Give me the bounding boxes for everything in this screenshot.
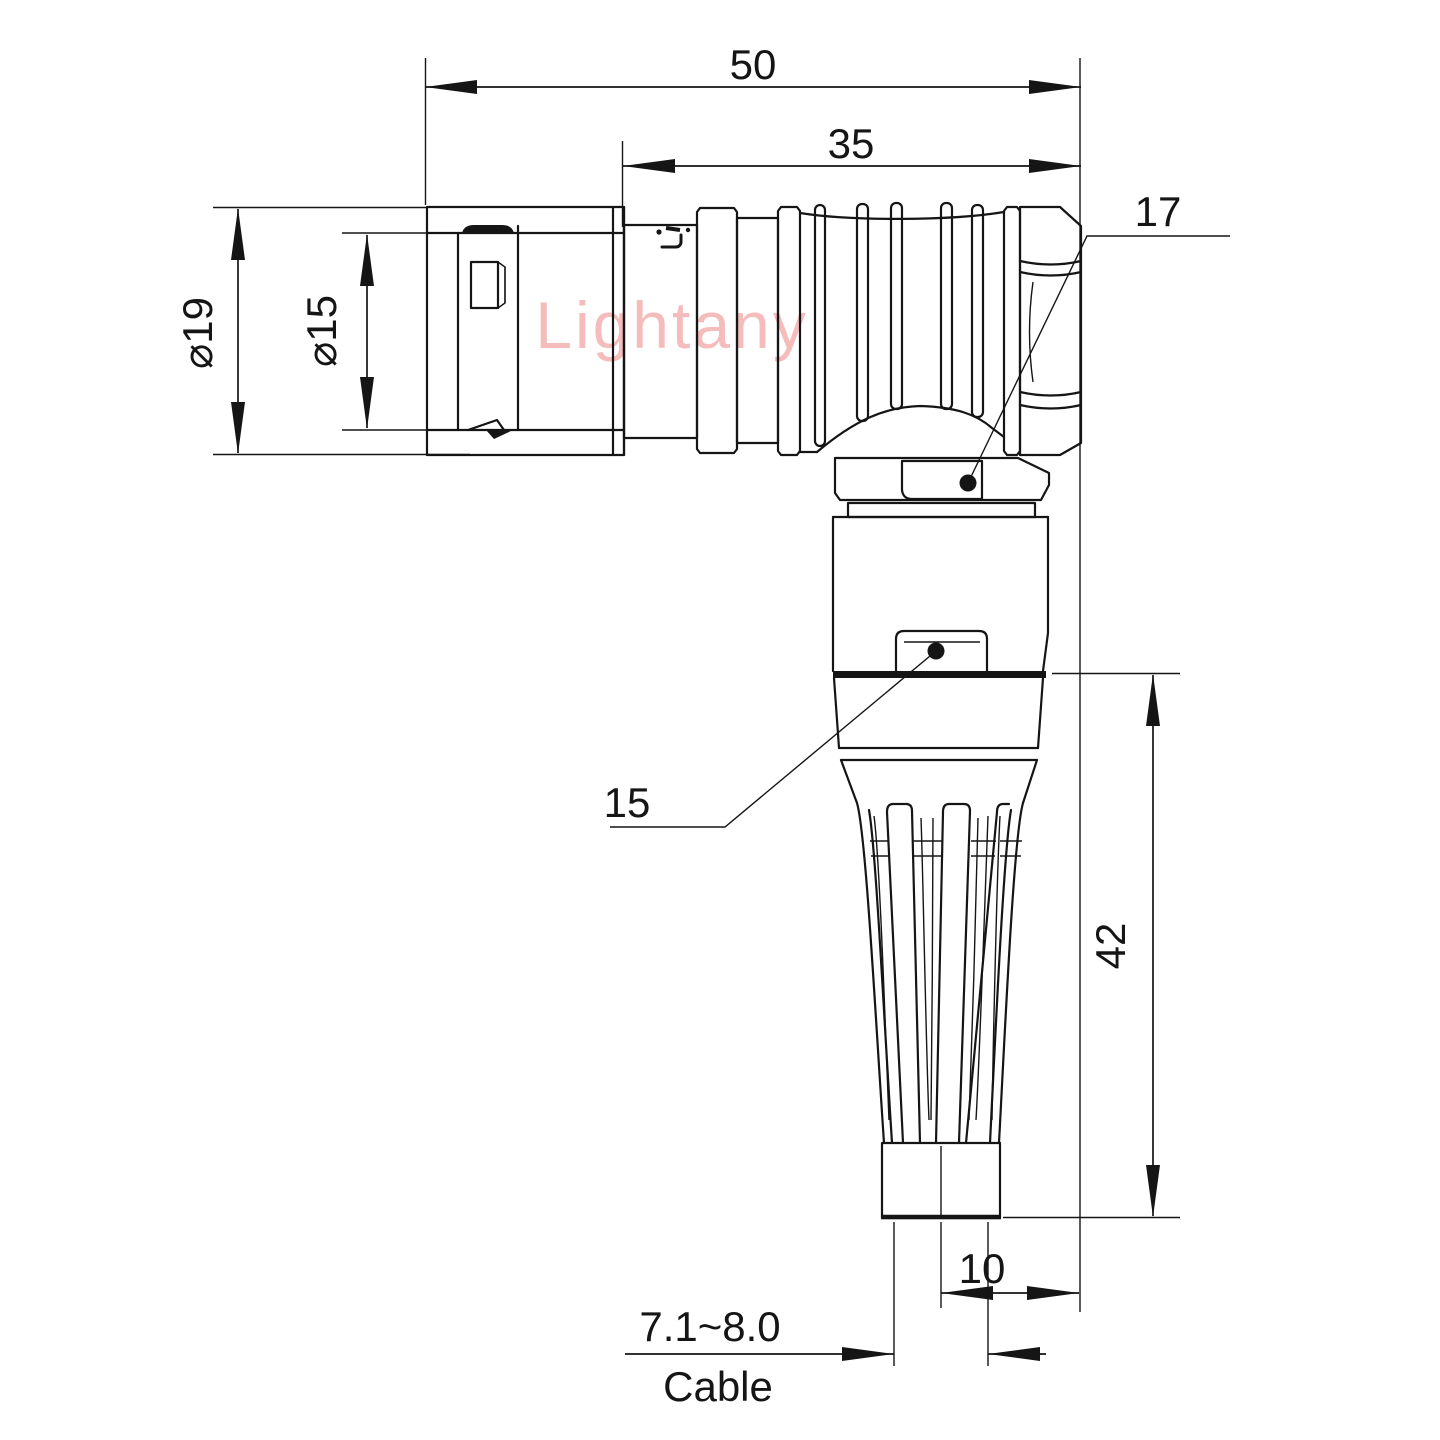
dimension-cable-axis-offset: 10 [941,1222,1079,1308]
sleeve-key-bump [462,225,514,233]
callout-15-label: 15 [604,779,651,826]
watermark-text: Lightany [535,288,809,362]
grip-rib [941,203,952,409]
technical-drawing-canvas: Lightany [0,0,1440,1440]
grip-rib [815,205,825,446]
grip-section [778,203,1020,455]
callout-elbow-nut: 17 [968,188,1230,483]
hex-nut [1020,207,1081,455]
dim-cable-axis-offset-label: 10 [959,1245,1006,1292]
connector-drawing: Lightany [0,0,1440,1440]
dim-cable-range-label: 7.1~8.0 [639,1303,780,1350]
bend-relief-boot [857,803,1023,1143]
grip-rib [972,205,983,417]
cable-word-label: Cable [663,1363,773,1410]
grip-rib [857,204,868,421]
grip-rib [891,203,902,409]
callout-17-label: 17 [1135,188,1182,235]
mold-marking [656,228,690,247]
keyway-window [471,262,498,308]
elbow-nut [835,458,1049,517]
elbow-ring [848,503,1035,517]
dim-outer-diameter-label: ⌀19 [174,297,221,369]
dimension-coupling-diameter: ⌀15 [298,233,458,430]
cable-end-cap [881,1143,1001,1218]
dim-body-length-label: 35 [828,120,875,167]
dimension-vertical-height: 42 [1003,674,1180,1218]
dim-coupling-diameter-label: ⌀15 [298,295,345,367]
dim-overall-length-label: 50 [730,41,777,88]
dimension-body-length: 35 [623,120,1082,227]
vertical-body [833,517,1048,803]
dim-vertical-height-label: 42 [1087,923,1134,970]
